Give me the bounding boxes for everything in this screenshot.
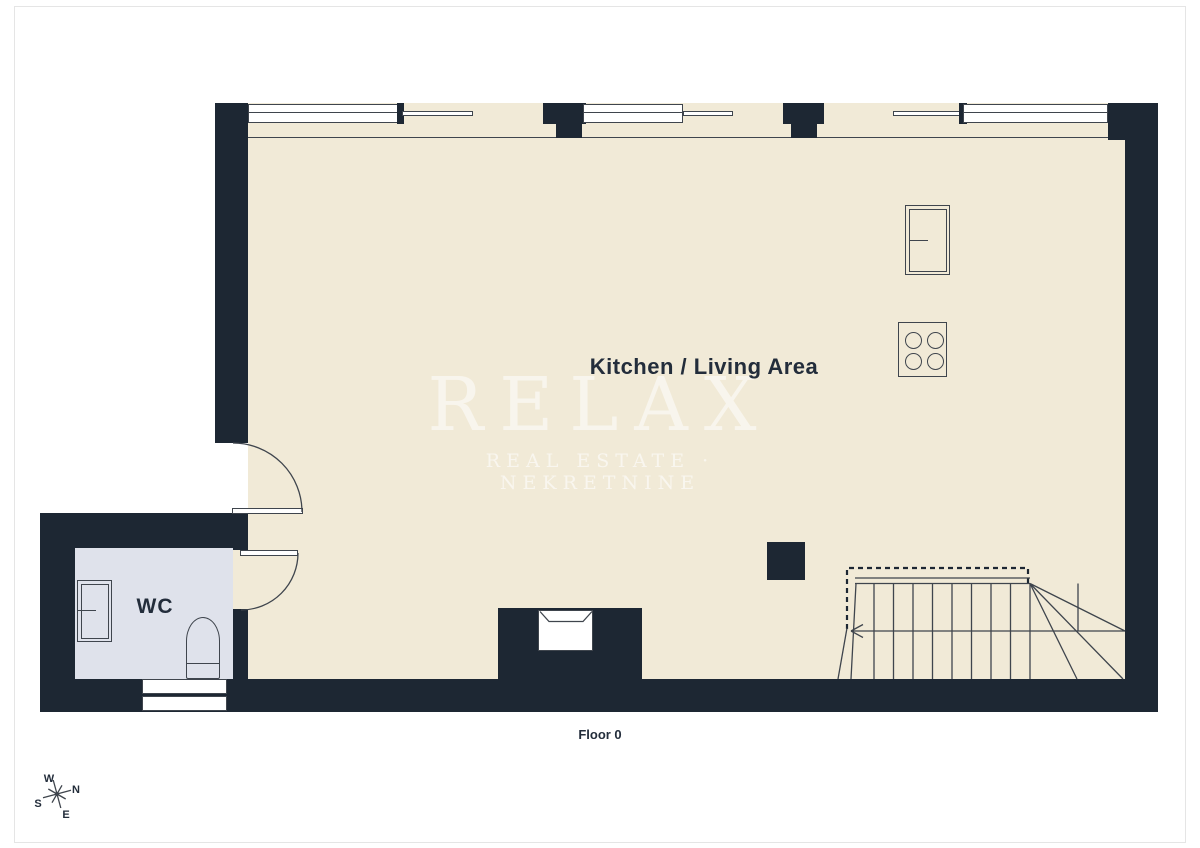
burner-circle [927,353,944,370]
chimney-niche [538,610,593,651]
window-mullion-line [584,112,682,113]
wall-left [215,103,248,443]
entry-door-leaf [232,508,303,514]
window-mullion-line [249,112,401,113]
sink-faucet-line [78,610,96,612]
wc-label: WC [137,595,174,619]
wc-door-leaf [240,550,298,556]
burner-circle [905,353,922,370]
top-wall-inner-line [248,137,1125,139]
wc-door-opening [233,550,248,609]
entry-step [142,696,227,711]
burner-circle [905,332,922,349]
main-room-floor [248,103,1125,679]
fridge-door-line [909,240,928,242]
toilet-icon [186,617,220,679]
wall-right [1125,103,1158,712]
entry-step [142,679,227,694]
room-label: Kitchen / Living Area [590,354,819,380]
burner-circle [927,332,944,349]
window-sill-panel [893,111,961,116]
window-sill-panel [683,111,733,116]
window-mullion-line [964,112,1107,113]
structural-column [767,542,805,580]
wall-column-stem [791,119,817,138]
sink-icon-inner [81,584,109,639]
toilet-cistern-line [187,663,219,665]
window [963,104,1108,124]
floorplan-page: RELAX REAL ESTATE · NEKRETNINE [0,0,1200,848]
wall-bottom [248,679,1158,712]
floor-level-label: Floor 0 [0,727,1200,742]
window [583,104,683,124]
window [248,104,402,124]
window-sill-panel [402,111,473,116]
